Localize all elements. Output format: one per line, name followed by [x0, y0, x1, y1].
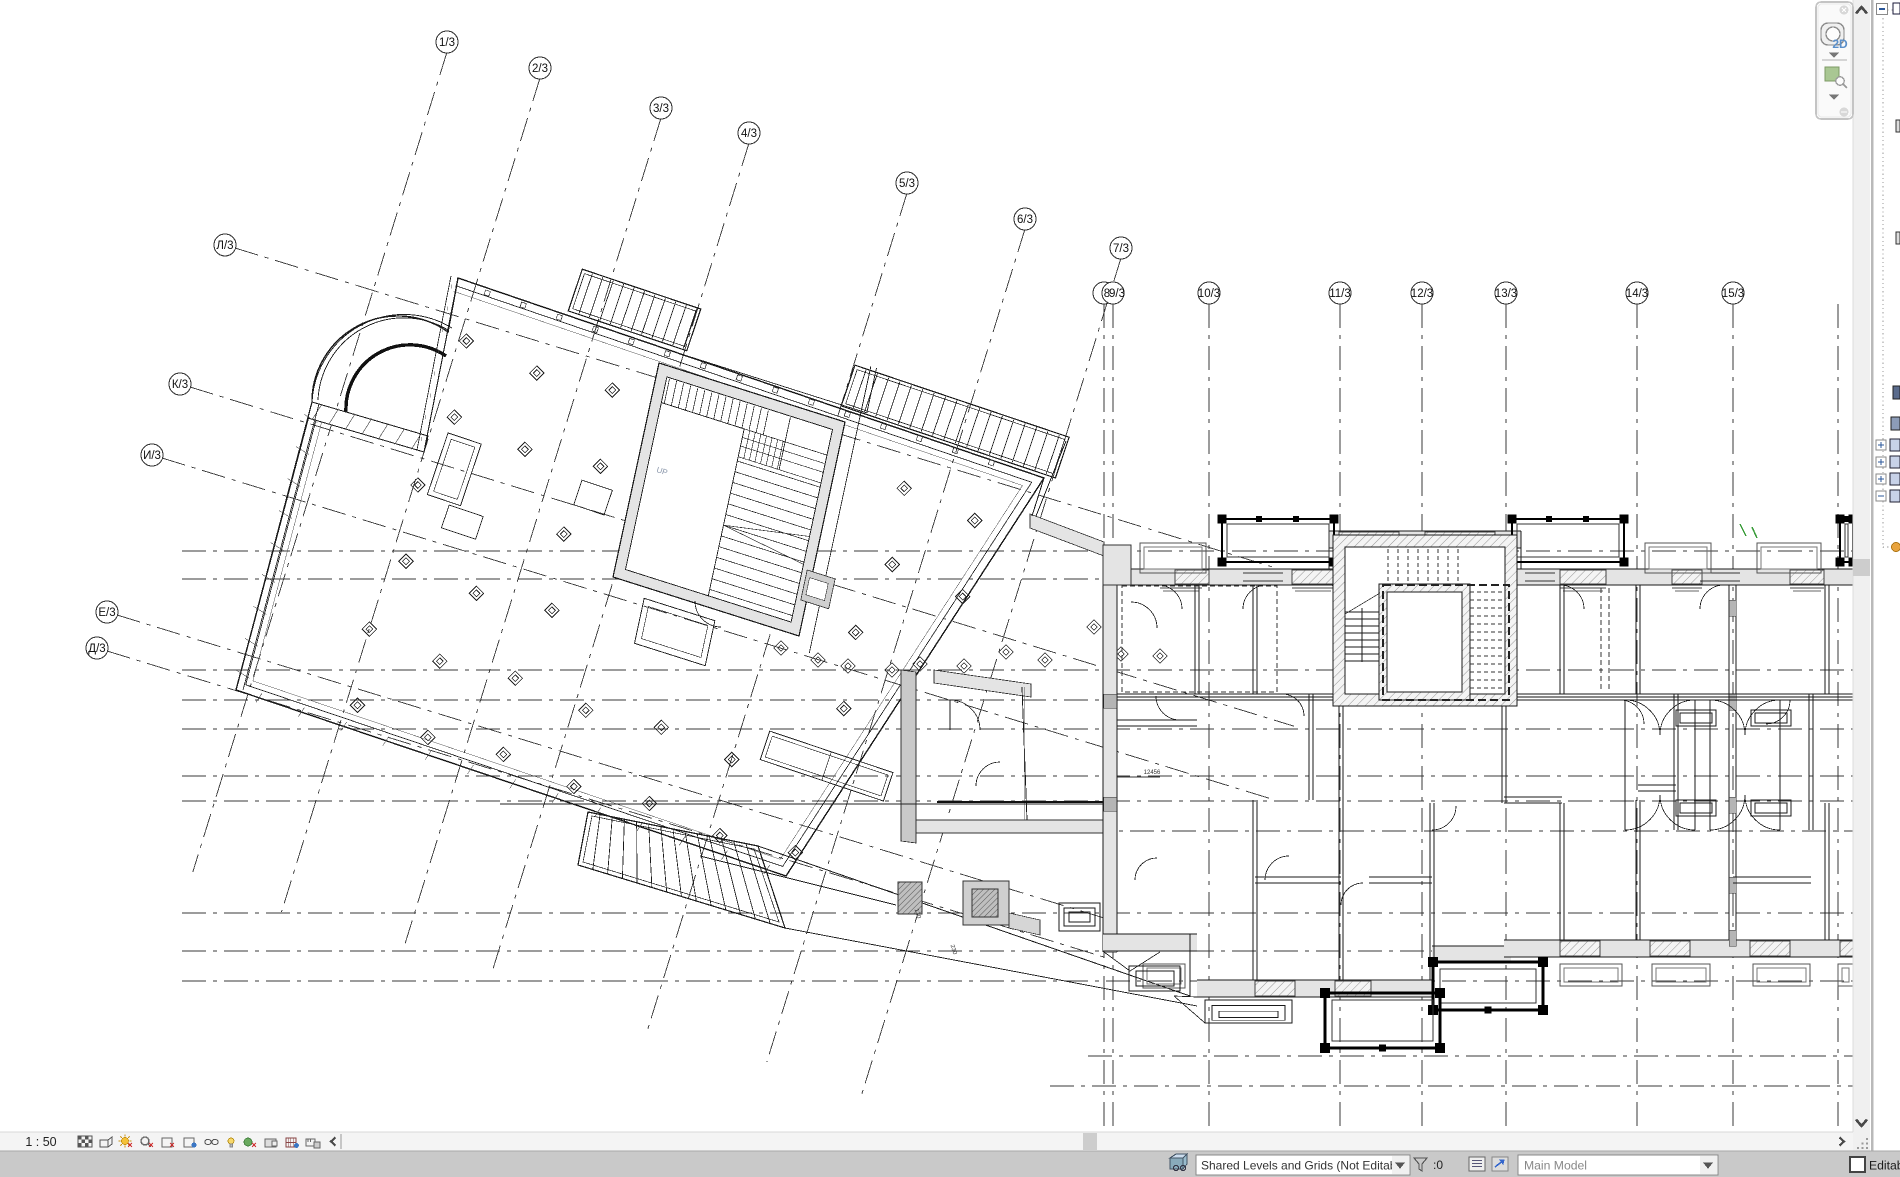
svg-text:Shared Levels and Grids (Not E: Shared Levels and Grids (Not Editab — [1201, 1159, 1397, 1173]
svg-text:7/3: 7/3 — [1113, 243, 1129, 255]
svg-text:4/3: 4/3 — [741, 128, 757, 140]
svg-text:Editab: Editab — [1869, 1159, 1900, 1173]
svg-text:2/3: 2/3 — [532, 63, 548, 75]
svg-text:×: × — [127, 1140, 132, 1150]
svg-text:13/3: 13/3 — [1495, 288, 1517, 300]
svg-text:К/3: К/3 — [172, 379, 188, 391]
svg-text:15/3: 15/3 — [1722, 288, 1744, 300]
svg-text:×: × — [251, 1140, 256, 1150]
svg-text::0: :0 — [1433, 1158, 1443, 1172]
svg-text:9/3: 9/3 — [1109, 288, 1125, 300]
svg-text:5/3: 5/3 — [899, 178, 915, 190]
svg-text:×: × — [148, 1140, 153, 1150]
svg-text:12456: 12456 — [1144, 770, 1161, 776]
svg-text:1/3: 1/3 — [439, 37, 455, 49]
svg-text:Д/3: Д/3 — [88, 643, 105, 655]
svg-text:14/3: 14/3 — [1626, 288, 1648, 300]
svg-text:3/3: 3/3 — [653, 103, 669, 115]
svg-text:12/3: 12/3 — [1411, 288, 1433, 300]
svg-text:И/3: И/3 — [143, 450, 161, 462]
svg-text:×: × — [169, 1140, 174, 1150]
svg-text:Л/3: Л/3 — [216, 240, 233, 252]
svg-text:Main Model: Main Model — [1524, 1159, 1587, 1173]
svg-text:6/3: 6/3 — [1017, 214, 1033, 226]
svg-text:10/3: 10/3 — [1198, 288, 1220, 300]
svg-text:1 : 50: 1 : 50 — [25, 1135, 56, 1149]
svg-text:2D: 2D — [1832, 37, 1848, 51]
svg-text:Е/3: Е/3 — [98, 607, 115, 619]
svg-text:11/3: 11/3 — [1329, 288, 1351, 300]
